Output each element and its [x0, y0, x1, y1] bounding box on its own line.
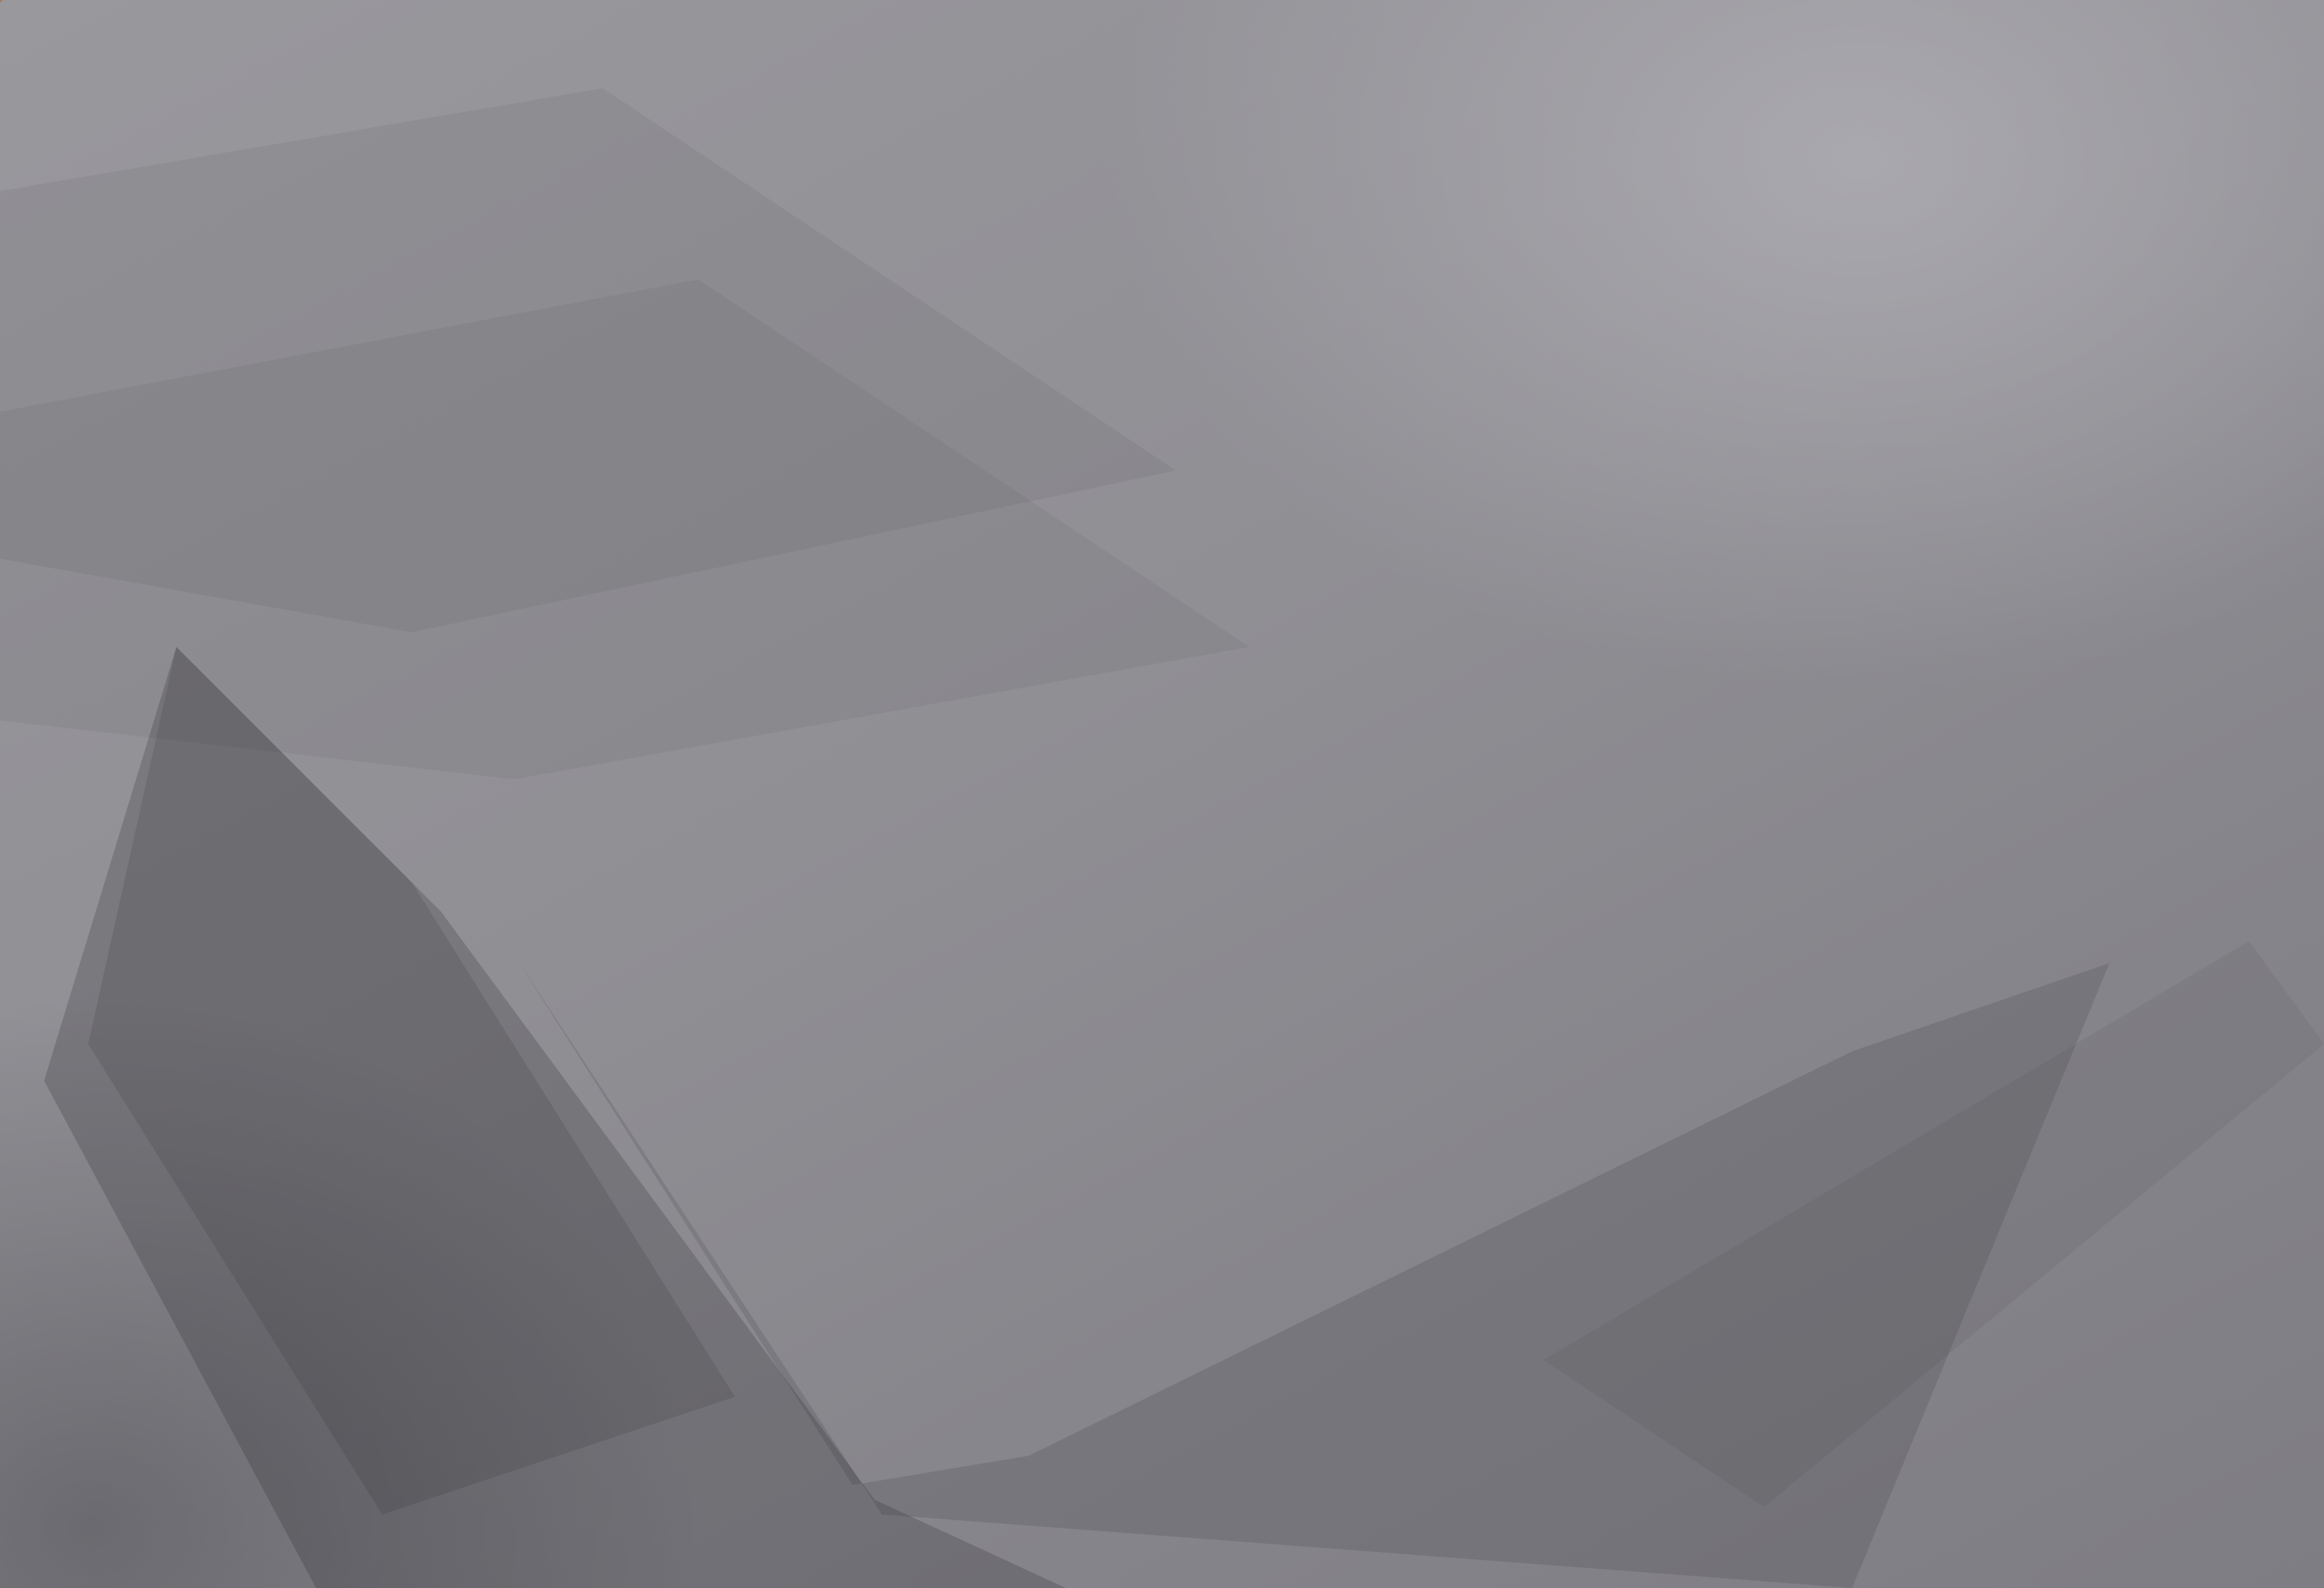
floors: [0, 0, 2, 2]
floorplan-3d-render: 3D cutaway floor plan render of a two-be…: [0, 0, 2324, 1588]
shadows: [0, 88, 2324, 1588]
apartment-cutaway-scene: [0, 0, 2324, 1588]
